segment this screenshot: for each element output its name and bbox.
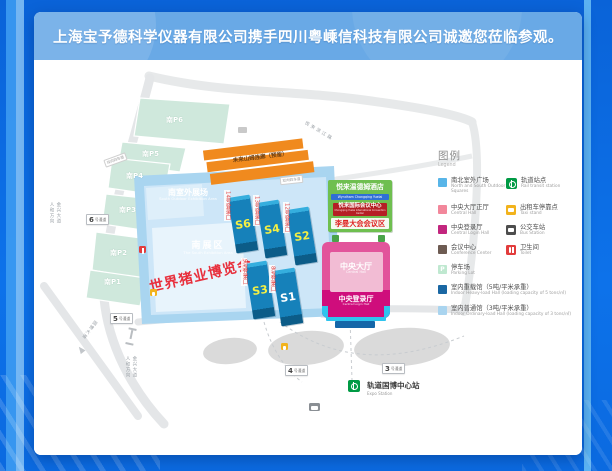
central-hall-label: 中央大厅 Central Hall — [326, 262, 386, 275]
legend-item-bus-station: 公交车站 Bus Station — [506, 225, 545, 237]
invitation-banner: 上海宝予德科学仪器有限公司携手四川粤嵊信科技有限公司诚邀您莅临参观。 — [34, 12, 582, 60]
rail-station-name-en: Expo Station — [367, 391, 420, 396]
parking-label: 南P4 — [126, 172, 143, 180]
gate-label-14: 14号登录口 — [224, 190, 230, 221]
left-stripe-inner — [16, 0, 24, 471]
taxi-icon — [506, 205, 516, 215]
hotel-en-ribbon: Wyndham Chongqing Yuelai — [331, 194, 389, 200]
gate-label-13: 13号登录口 — [253, 195, 259, 226]
taxi-icon — [150, 289, 157, 296]
parking-label: 南P6 — [166, 116, 183, 124]
left-stripe-outer — [6, 0, 16, 471]
central-hall-complex: 中央大厅 Central Hall 中央登录厅 Central Login Ha… — [322, 242, 390, 318]
color-chip — [438, 245, 447, 254]
rail-transit-icon — [348, 380, 360, 392]
invitation-text: 上海宝予德科学仪器有限公司携手四川粤嵊信科技有限公司诚邀您莅临参观。 — [34, 12, 582, 60]
map-legend: 图例 Legend 南北室外广场 North and South Outdoor… — [430, 148, 582, 348]
central-login-label: 中央登录厅 Central Login Hall — [326, 295, 386, 306]
bus-icon — [506, 225, 516, 235]
legend-item-parking: P 停车场 Parking Lot — [438, 265, 475, 277]
color-chip — [438, 225, 447, 234]
legend-title: 图例 Legend — [438, 148, 461, 168]
toilet-icon — [139, 246, 146, 253]
page-background: 上海宝予德科学仪器有限公司携手四川粤嵊信科技有限公司诚邀您莅临参观。 — [0, 0, 612, 471]
legend-item-outdoor-squares: 南北室外广场 North and South Outdoor Squares — [438, 178, 509, 195]
hotel-building: 悦来温德姆酒店 Wyndham Chongqing Yuelai 悦来国际会议中… — [328, 180, 392, 232]
road-label-jinxing-bottom: 金兴大道 人和方向 — [124, 356, 136, 378]
gate-label-12: 12号登录口 — [283, 202, 289, 233]
channel-5-badge: 5号通道 — [110, 313, 133, 324]
gate-label-8: 8号登录口 — [269, 265, 275, 293]
color-chip — [438, 205, 447, 214]
taxi-icon — [281, 343, 288, 350]
escalator-icon — [332, 235, 339, 242]
rail-station-name: 轨道国博中心站 — [367, 380, 420, 391]
legend-item-taxi-stand: 出租车停靠点 Taxi stand — [506, 205, 558, 217]
invitation-card: 上海宝予德科学仪器有限公司携手四川粤嵊信科技有限公司诚邀您莅临参观。 — [34, 12, 582, 455]
legend-item-heavy-load-hall: 室内重载馆（5吨/平米承重） Indoor Heavy-load Hall (l… — [438, 285, 566, 297]
color-chip — [438, 178, 447, 187]
rail-transit-icon — [506, 178, 517, 189]
legend-item-ordinary-load-hall: 室内普通馆（3吨/平米承重） Indoor Ordinary-load Hall… — [438, 306, 571, 318]
legend-item-central-login: 中央登录厅 Central Login Hall — [438, 225, 489, 237]
parking-label: 南P3 — [119, 206, 136, 214]
road-label-jinxing-top: 金兴大道 人和方向 — [48, 202, 60, 224]
hotel-name: 悦来温德姆酒店 — [330, 184, 390, 192]
toilet-icon — [506, 245, 516, 255]
south-zone-label: 南展区 The South Exhibition Area — [172, 241, 244, 256]
escalator-icon — [378, 235, 385, 242]
parking-label: 南P5 — [142, 150, 159, 158]
bus-icon — [309, 403, 320, 411]
parking-label: 南P1 — [104, 278, 121, 286]
parking-label: 南P2 — [110, 249, 127, 257]
legend-item-central-hall: 中央大厅正厅 Central Hall — [438, 205, 489, 217]
south-outdoor-label: 南室外展场 South Outdoor Exhibition Area — [152, 188, 224, 202]
right-stripe — [584, 0, 591, 471]
channel-6-badge: 6号通道 — [86, 214, 109, 225]
gate-label-9: 9号登录口 — [241, 258, 247, 286]
road-sign — [238, 127, 247, 133]
color-chip — [438, 306, 447, 315]
channel-4-badge: 4号通道 — [285, 365, 308, 376]
legend-item-toilet: 卫生间 Toilet — [506, 245, 539, 257]
convention-center-badge: 悦来国际会议中心 Chongqing Yuelai International … — [333, 203, 387, 216]
parking-chip: P — [438, 265, 447, 274]
venue-map: 未来山姆连廊（预留） 双向四车道 双向四车道 南P6 南P5 南P4 南P3 南… — [34, 60, 582, 455]
legend-item-rail-station: 轨道站点 Rail transit station — [506, 178, 560, 190]
channel-3-badge: 3号通道 — [382, 363, 405, 374]
color-chip — [438, 285, 447, 294]
legend-item-conference-center: 会议中心 Conference Center — [438, 245, 491, 257]
rail-station: 轨道国博中心站 Expo Station — [348, 380, 420, 396]
blue-entry-tab — [335, 321, 375, 328]
leman-area-strip: 李曼大会会议区 — [331, 218, 389, 229]
